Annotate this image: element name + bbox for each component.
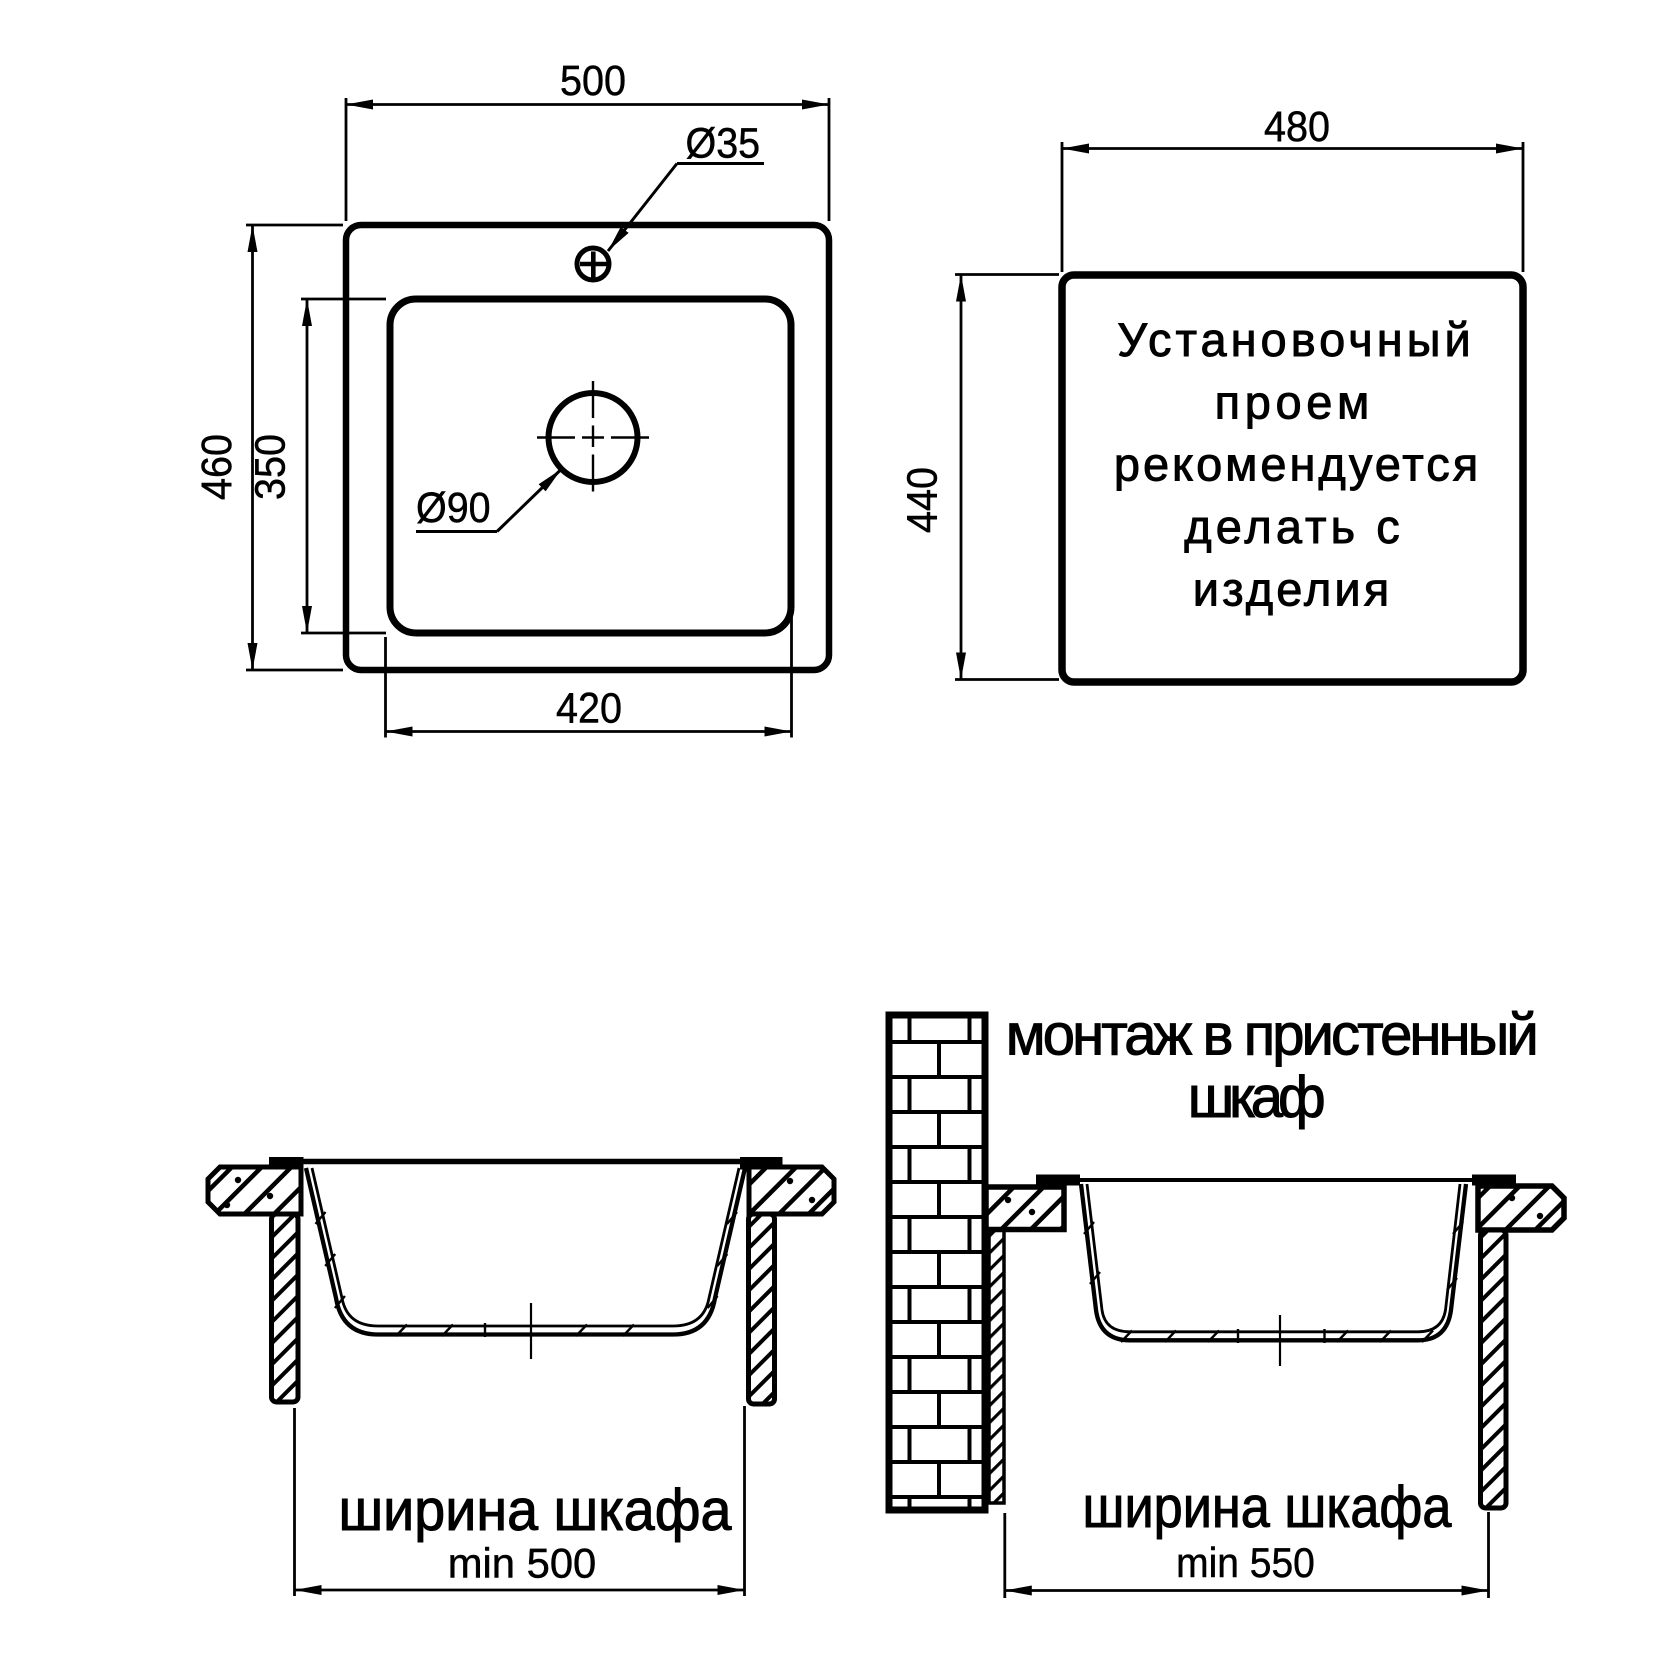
svg-text:350: 350 bbox=[248, 434, 295, 500]
svg-text:min 550: min 550 bbox=[1176, 1539, 1315, 1586]
svg-text:ширина шкафа: ширина шкафа bbox=[1083, 1475, 1453, 1540]
svg-text:480: 480 bbox=[1264, 104, 1330, 151]
svg-text:Ø90: Ø90 bbox=[416, 485, 491, 532]
svg-text:ширина шкафа: ширина шкафа bbox=[339, 1478, 733, 1543]
svg-text:460: 460 bbox=[194, 434, 241, 500]
svg-text:проем: проем bbox=[1215, 375, 1370, 428]
svg-text:шкаф: шкаф bbox=[1188, 1065, 1326, 1130]
svg-text:изделия: изделия bbox=[1193, 562, 1389, 615]
svg-text:min 500: min 500 bbox=[448, 1540, 597, 1587]
svg-text:Ø35: Ø35 bbox=[686, 121, 761, 168]
svg-text:делать с: делать с bbox=[1184, 500, 1400, 553]
svg-text:440: 440 bbox=[900, 467, 947, 533]
svg-text:Установочный: Установочный bbox=[1117, 313, 1471, 366]
svg-text:420: 420 bbox=[556, 686, 622, 733]
svg-text:монтаж в пристенный: монтаж в пристенный bbox=[1006, 1003, 1539, 1068]
svg-text:500: 500 bbox=[560, 58, 626, 105]
